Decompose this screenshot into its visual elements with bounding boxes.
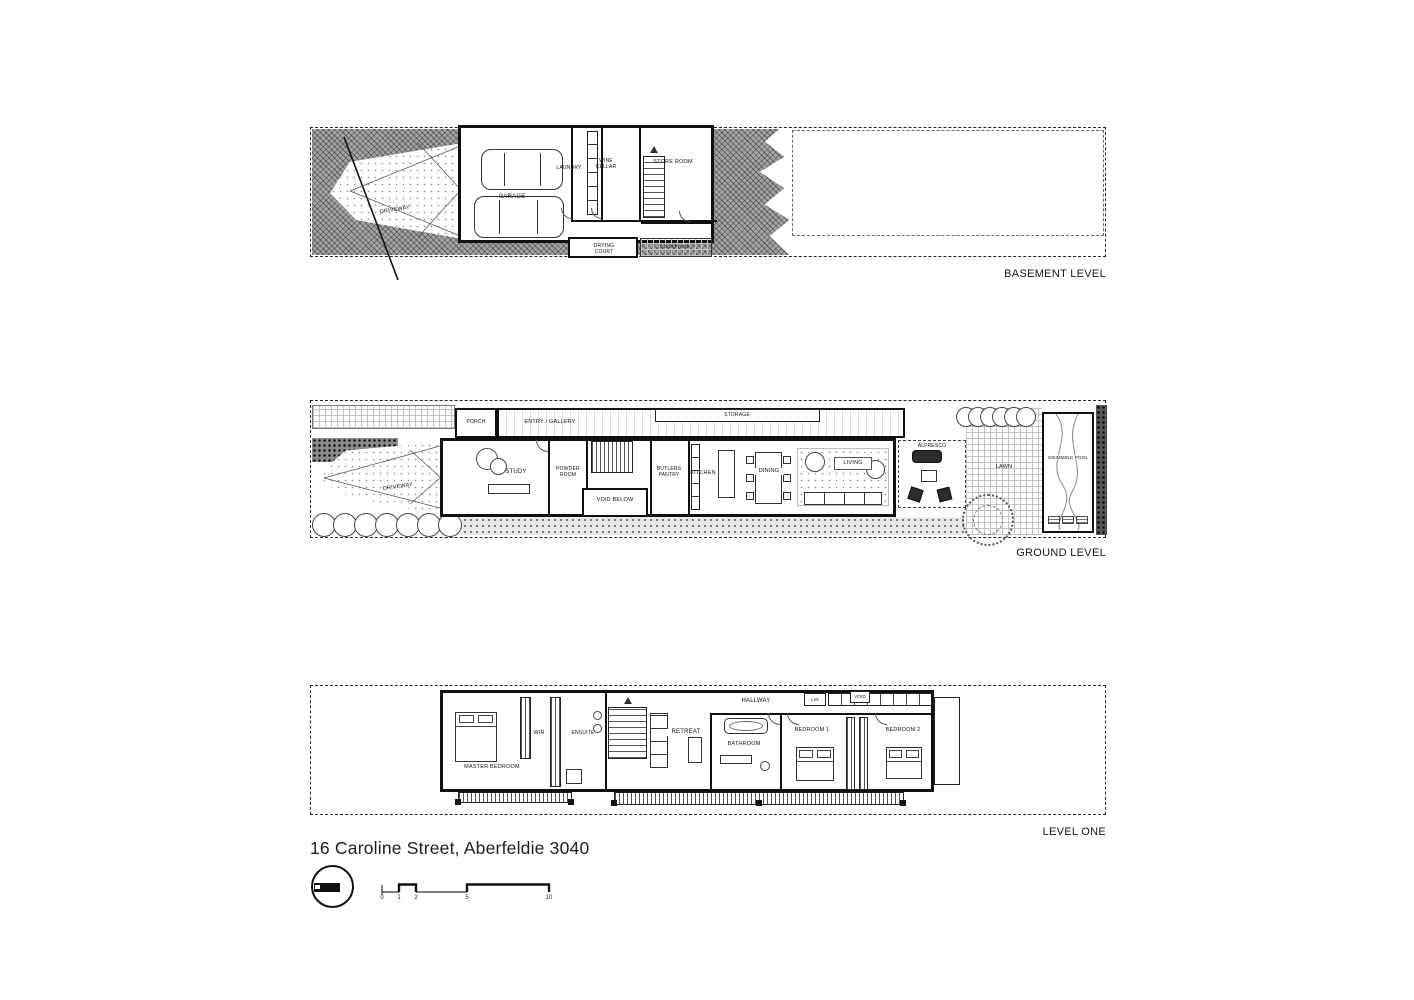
wall-garage-laundry [571, 128, 573, 220]
label-courtyard: COURTYARD [645, 244, 705, 249]
basin [593, 711, 602, 720]
outdoor-sofa [912, 450, 942, 463]
wall-store-bottom [641, 222, 711, 224]
label-void-below: VOID BELOW [586, 497, 644, 504]
label-void: VOID [851, 694, 869, 699]
wall-wine-store [639, 128, 641, 220]
pool-lounger [1076, 516, 1088, 524]
label-master-bedroom: MASTER BEDROOM [455, 764, 529, 771]
label-laundry: LAUNDRY [552, 165, 586, 171]
dining-chair [746, 492, 754, 500]
label-bathroom: BATHROOM [716, 741, 772, 748]
car-2 [474, 196, 564, 238]
floor-plan-sheet: DRYING COURT COURTYARD DRIVEWAY GARAGE L… [0, 0, 1414, 1000]
label-bedroom-1: BEDROOM 1 [784, 727, 840, 734]
wall-bathroom-bed1 [780, 713, 782, 792]
tree [962, 494, 1014, 546]
basement-title: BASEMENT LEVEL [910, 268, 1106, 280]
toilet [760, 761, 770, 771]
side-terrace [934, 697, 960, 785]
scale-tick-5: 5 [461, 895, 473, 901]
level-one-plan: LIN VOID MASTER BEDROOM WIR ENSUITE RETR… [310, 685, 1108, 850]
balcony-post [611, 800, 617, 806]
bed-2 [886, 747, 922, 779]
label-study: STUDY [490, 469, 542, 476]
pool-lounger [1062, 516, 1074, 524]
label-dining: DINING [754, 468, 784, 475]
scale-tick-10: 10 [543, 895, 555, 901]
label-lawn: LAWN [968, 464, 1040, 471]
scale-tick-1: 1 [393, 895, 405, 901]
label-entry-gallery: ENTRY / GALLERY [505, 419, 595, 426]
outdoor-table [921, 470, 937, 482]
label-retreat: RETREAT [662, 729, 710, 736]
balcony-post [455, 799, 461, 805]
living-sofa [804, 492, 882, 505]
bathtub [724, 718, 768, 734]
scale-bar: 0 1 2 5 10 [378, 878, 560, 904]
study-desk [488, 484, 530, 494]
door-arc-wine [591, 208, 602, 219]
basement-plan: DRYING COURT COURTYARD DRIVEWAY GARAGE L… [310, 125, 1108, 290]
laundry-appliances [587, 131, 598, 215]
dining-chair [783, 456, 791, 464]
kitchen-island [718, 450, 735, 498]
dining-chair [783, 492, 791, 500]
kitchen-bench [691, 444, 700, 510]
basement-building [458, 125, 714, 243]
label-porch: PORCH [457, 419, 495, 425]
wardrobe [520, 697, 531, 759]
pool-lounger [1048, 516, 1060, 524]
wall-ensuite-stairs [605, 693, 607, 790]
label-lin: LIN [805, 697, 825, 702]
balcony-post [900, 800, 906, 806]
wall-laundry-wine [601, 128, 603, 220]
linen-cupboard: LIN [804, 693, 826, 706]
ground-stairs [591, 441, 633, 473]
void-box: VOID [850, 691, 870, 703]
stair-arrow-icon [624, 697, 632, 704]
robe [846, 717, 855, 790]
label-wir: WIR [524, 730, 554, 737]
label-garage: GARAGE [482, 194, 542, 201]
north-symbol-icon [311, 865, 354, 908]
balcony [458, 792, 572, 803]
bed-1 [796, 747, 834, 781]
label-living: LIVING [834, 457, 872, 470]
label-kitchen: KITCHEN [690, 470, 716, 477]
sheet-address: 16 Caroline Street, Aberfeldie 3040 [310, 838, 589, 859]
label-store-room: STORE ROOM [642, 159, 704, 166]
wall-butlers-kitchen [688, 440, 690, 515]
shrub [1016, 407, 1036, 427]
ground-title: GROUND LEVEL [910, 547, 1106, 559]
level-one-stairs [608, 707, 647, 759]
scale-bar-lines [378, 878, 560, 896]
label-powder-room: POWDER ROOM [550, 466, 586, 478]
armchair [805, 452, 825, 472]
label-butlers-pantry: BUTLERS PANTRY [652, 466, 686, 478]
label-swimming-pool: SWIMMING POOL [1044, 455, 1092, 460]
wall-hallway [710, 713, 932, 715]
scale-tick-2: 2 [410, 895, 422, 901]
dining-chair [746, 474, 754, 482]
car-1 [481, 149, 563, 190]
hedge-strip [1096, 405, 1107, 535]
dining-chair [783, 474, 791, 482]
swimming-pool-area [1042, 412, 1094, 533]
retreat-sofa [650, 713, 668, 768]
wardrobe [550, 697, 561, 787]
level-one-title: LEVEL ONE [910, 826, 1106, 838]
label-alfresco: ALFRESCO [906, 443, 958, 449]
dining-table [755, 452, 782, 504]
hall-cabinets [828, 693, 932, 706]
balcony-post [756, 800, 762, 806]
stair-arrow-icon [650, 146, 658, 153]
label-hallway: HALLWAY [726, 698, 786, 705]
label-storage: STORAGE [675, 412, 799, 418]
scale-tick-0: 0 [376, 895, 388, 901]
basement-future-outline [792, 130, 1104, 236]
vanity [720, 755, 752, 764]
ground-plan: PORCH ENTRY / GALLERY STORAGE DRIVEWAY S… [310, 400, 1108, 570]
label-ensuite: ENSUITE [562, 730, 604, 736]
drying-court-room: DRYING COURT [568, 237, 638, 258]
retreat-table [688, 737, 702, 763]
pool-waves [1044, 414, 1092, 530]
courtyard-area: COURTYARD [640, 238, 712, 257]
label-bedroom-2: BEDROOM 2 [874, 727, 932, 734]
master-bed [455, 712, 497, 762]
label-drying-court: DRYING COURT [584, 243, 624, 255]
robe [859, 717, 868, 790]
rear-pavement [462, 517, 964, 535]
wall-retreat-bathroom [710, 713, 712, 792]
balcony-post [568, 799, 574, 805]
dining-chair [746, 456, 754, 464]
label-wine-cellar: WINE CELLAR [593, 158, 619, 170]
shower [566, 769, 582, 784]
